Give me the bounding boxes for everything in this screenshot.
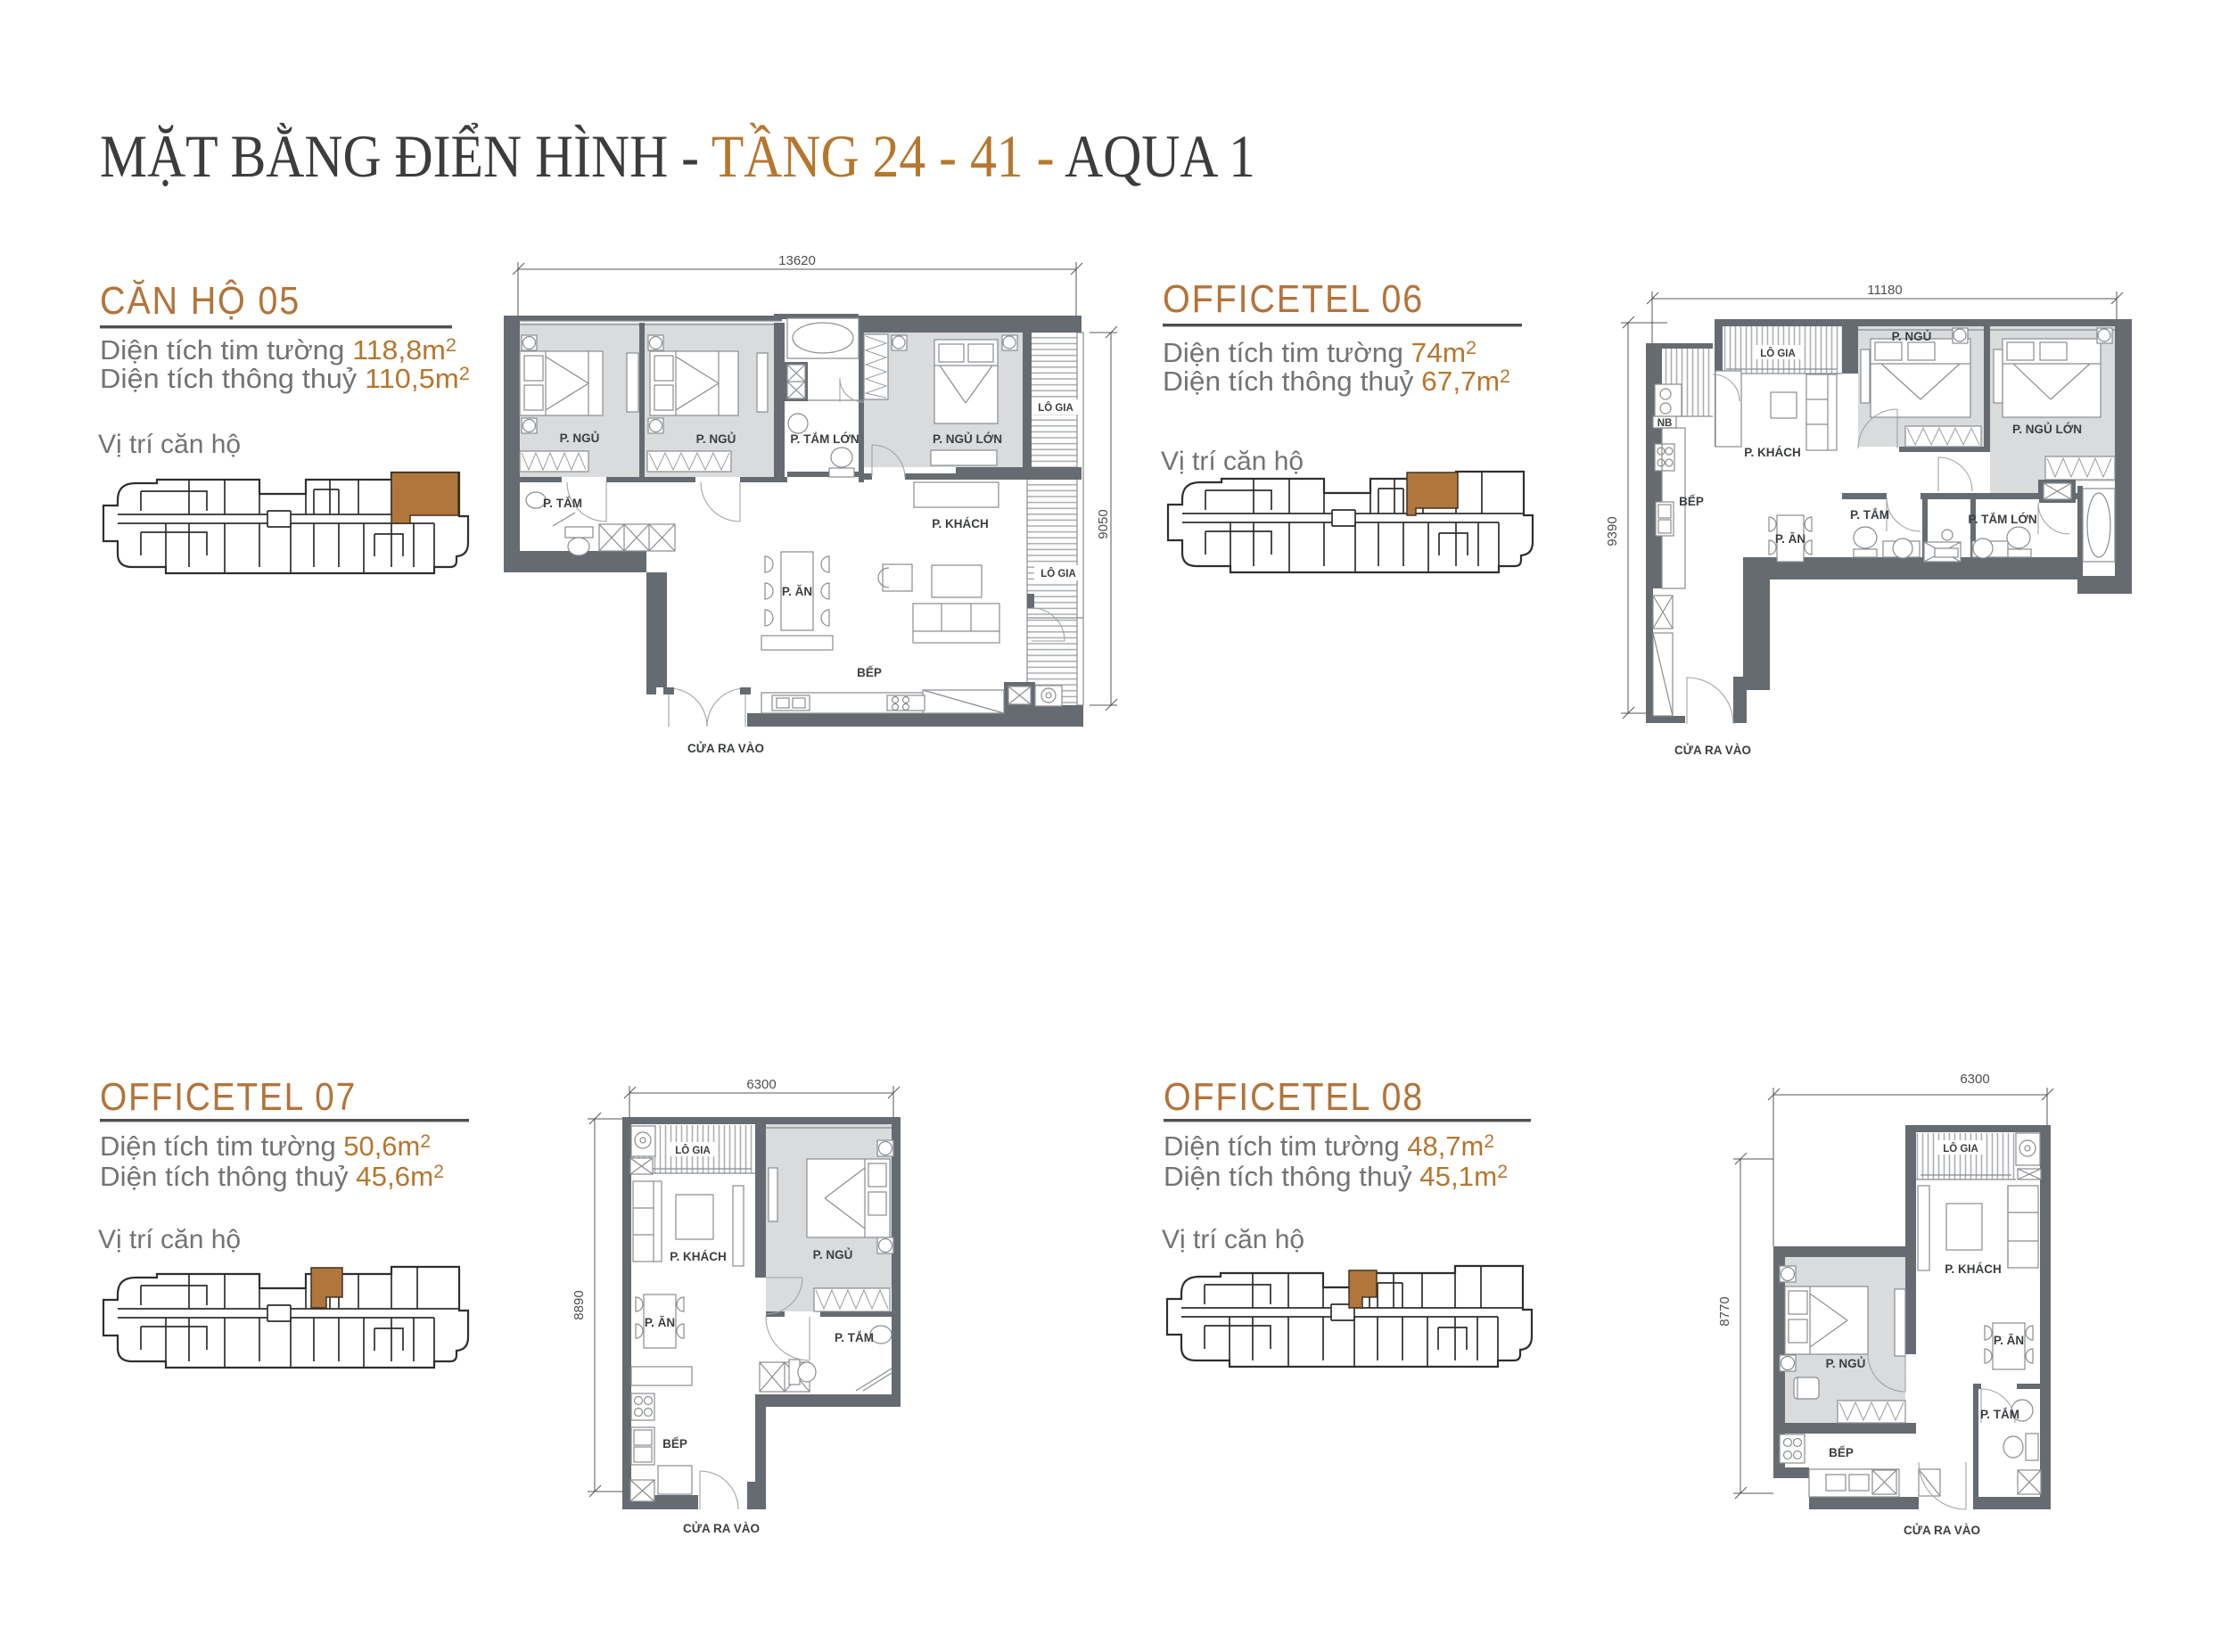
svg-text:8890: 8890	[572, 1290, 587, 1319]
svg-text:LÔ GIA: LÔ GIA	[1038, 402, 1073, 414]
svg-text:P. NGỦ LỚN: P. NGỦ LỚN	[2012, 423, 2082, 436]
svg-text:Diện tích tim tường 50,6m2: Diện tích tim tường 50,6m2	[100, 1130, 431, 1162]
svg-text:OFFICETEL 08: OFFICETEL 08	[1164, 1075, 1424, 1119]
svg-text:NB: NB	[1657, 418, 1673, 429]
svg-text:Diện tích thông thuỷ 110,5m2: Diện tích thông thuỷ 110,5m2	[100, 363, 470, 394]
svg-text:P. KHÁCH: P. KHÁCH	[932, 517, 989, 530]
svg-text:P. NGỦ: P. NGỦ	[560, 431, 600, 445]
svg-text:MẶT BẰNG ĐIỂN HÌNH - TẦNG 24 -: MẶT BẰNG ĐIỂN HÌNH - TẦNG 24 - 41 - AQUA…	[100, 122, 1255, 190]
svg-text:CỬA RA VÀO: CỬA RA VÀO	[1904, 1524, 1980, 1537]
svg-text:BẾP: BẾP	[1829, 1446, 1854, 1459]
svg-text:BẾP: BẾP	[1679, 495, 1704, 508]
svg-text:9390: 9390	[1605, 516, 1620, 546]
svg-text:OFFICETEL 07: OFFICETEL 07	[100, 1075, 357, 1119]
svg-text:P. TẮM: P. TẮM	[543, 497, 582, 510]
svg-text:6300: 6300	[1960, 1072, 1989, 1087]
svg-text:P. ĂN: P. ĂN	[645, 1316, 675, 1329]
svg-text:P. NGỦ LỚN: P. NGỦ LỚN	[933, 432, 1002, 446]
svg-text:LÔ GIA: LÔ GIA	[1943, 1143, 1978, 1155]
svg-text:8770: 8770	[1717, 1296, 1732, 1326]
svg-text:P. NGỦ: P. NGỦ	[1892, 330, 1932, 343]
svg-text:P. NGỦ: P. NGỦ	[696, 432, 736, 446]
svg-text:P. TẮM: P. TẮM	[1980, 1408, 2019, 1421]
svg-text:P. NGỦ: P. NGỦ	[813, 1248, 853, 1262]
svg-text:BẾP: BẾP	[857, 666, 882, 679]
svg-text:13620: 13620	[778, 253, 816, 268]
svg-text:P. NGỦ: P. NGỦ	[1826, 1357, 1866, 1370]
svg-text:6300: 6300	[746, 1077, 776, 1092]
svg-text:Diện tích thông thuỷ 45,6m2: Diện tích thông thuỷ 45,6m2	[100, 1161, 444, 1192]
svg-text:Diện tích tim tường 74m2: Diện tích tim tường 74m2	[1163, 337, 1476, 368]
svg-text:CĂN HỘ 05: CĂN HỘ 05	[100, 278, 300, 323]
svg-text:P. TẮM LỚN: P. TẮM LỚN	[790, 432, 859, 446]
svg-text:P. TẮM: P. TẮM	[1850, 508, 1889, 522]
svg-text:P. ĂN: P. ĂN	[1775, 532, 1805, 546]
svg-text:LÔ GIA: LÔ GIA	[1760, 348, 1796, 359]
svg-text:LÔ GIA: LÔ GIA	[675, 1145, 711, 1156]
svg-text:Vị trí căn hộ: Vị trí căn hộ	[1162, 1225, 1304, 1254]
svg-text:OFFICETEL 06: OFFICETEL 06	[1163, 277, 1424, 321]
svg-text:BẾP: BẾP	[662, 1437, 687, 1451]
svg-text:Diện tích thông thuỷ 67,7m2: Diện tích thông thuỷ 67,7m2	[1163, 366, 1510, 397]
svg-text:P. ĂN: P. ĂN	[782, 585, 812, 598]
svg-text:Diện tích tim tường 118,8m2: Diện tích tim tường 118,8m2	[100, 334, 456, 366]
svg-text:P. TẮM: P. TẮM	[835, 1331, 874, 1344]
svg-text:CỬA RA VÀO: CỬA RA VÀO	[683, 1522, 760, 1535]
svg-text:9050: 9050	[1096, 509, 1111, 538]
svg-text:Diện tích tim tường 48,7m2: Diện tích tim tường 48,7m2	[1164, 1130, 1494, 1162]
svg-text:P. KHÁCH: P. KHÁCH	[1945, 1262, 2002, 1276]
svg-text:11180: 11180	[1867, 283, 1903, 298]
svg-text:CỬA RA VÀO: CỬA RA VÀO	[1674, 744, 1751, 757]
svg-text:Vị trí căn hộ: Vị trí căn hộ	[1161, 447, 1304, 476]
svg-text:CỬA RA VÀO: CỬA RA VÀO	[687, 742, 764, 755]
svg-text:Vị trí căn hộ: Vị trí căn hộ	[98, 430, 241, 459]
svg-text:LÔ GIA: LÔ GIA	[1040, 568, 1076, 579]
svg-text:P. ĂN: P. ĂN	[1994, 1334, 2024, 1347]
svg-text:P. KHÁCH: P. KHÁCH	[1744, 446, 1801, 459]
svg-text:Vị trí căn hộ: Vị trí căn hộ	[98, 1225, 241, 1254]
svg-text:Diện tích thông thuỷ 45,1m2: Diện tích thông thuỷ 45,1m2	[1164, 1161, 1508, 1192]
svg-text:P. TẮM LỚN: P. TẮM LỚN	[1968, 513, 2036, 526]
svg-text:P. KHÁCH: P. KHÁCH	[670, 1250, 727, 1263]
